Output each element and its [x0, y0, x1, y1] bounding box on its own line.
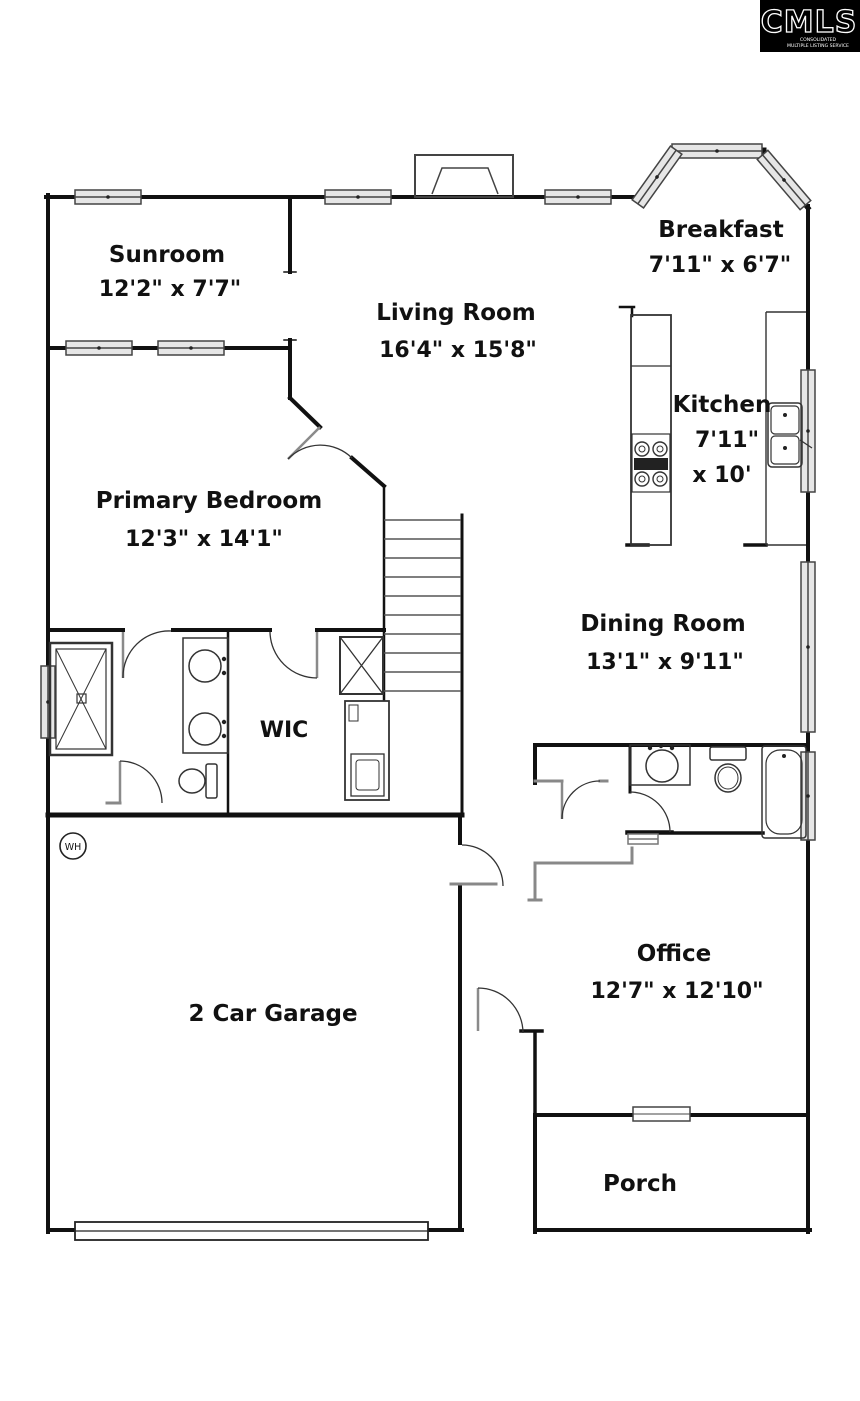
garage-label: 2 Car Garage	[188, 1001, 357, 1027]
utility-cabinet	[345, 701, 389, 800]
primary-bedroom-dims: 12'3" x 14'1"	[125, 527, 283, 552]
garage-door	[75, 1222, 428, 1240]
closet-opening	[628, 834, 658, 844]
thin-partition-walls	[107, 781, 632, 900]
window	[801, 752, 815, 840]
living-room-dims: 16'4" x 15'8"	[379, 338, 537, 363]
bathtub	[762, 746, 806, 838]
dining-room-label: Dining Room	[580, 611, 745, 637]
window	[801, 562, 815, 732]
primary-bedroom-label: Primary Bedroom	[96, 488, 322, 514]
cmls-logo: CMLS CONSOLIDATED MULTIPLE LISTING SERVI…	[760, 0, 860, 52]
window	[75, 190, 141, 204]
cmls-logo-brand: CMLS	[761, 5, 858, 40]
window	[325, 190, 391, 204]
doors	[120, 427, 670, 1033]
office-label: Office	[637, 941, 711, 967]
stove	[632, 434, 670, 492]
window	[801, 370, 815, 492]
kitchen-dims-2: x 10'	[692, 463, 751, 488]
fireplace	[415, 155, 513, 197]
stair-closet-xbox	[340, 637, 383, 694]
sunroom-label: Sunroom	[109, 242, 225, 268]
toilet-hall	[710, 747, 746, 792]
water-heater-label: WH	[65, 842, 82, 853]
sunroom-dims: 12'2" x 7'7"	[99, 277, 241, 302]
porch-label: Porch	[603, 1171, 677, 1197]
porch-step	[633, 1107, 690, 1121]
bay-window-right	[757, 150, 811, 209]
kitchen-dims-1: 7'11"	[695, 428, 759, 453]
kitchen-island	[631, 315, 671, 545]
shower	[50, 643, 112, 755]
floorplan-drawing: WH Sunroom 12'2" x 7'7" Living Room 16'4…	[0, 0, 860, 1401]
kitchen-label: Kitchen	[673, 392, 772, 418]
room-labels: Sunroom 12'2" x 7'7" Living Room 16'4" x…	[96, 217, 791, 1197]
hall-bath-vanity	[630, 744, 690, 785]
office-dims: 12'7" x 12'10"	[590, 979, 763, 1004]
double-vanity	[183, 638, 228, 753]
bay-window-top	[672, 144, 762, 158]
window	[545, 190, 611, 204]
bay-window-left	[632, 146, 682, 208]
breakfast-label: Breakfast	[658, 217, 784, 243]
staircase	[384, 520, 461, 691]
kitchen-counter	[766, 312, 806, 545]
cmls-logo-caption-2: MULTIPLE LISTING SERVICE	[787, 43, 849, 49]
floorplan-page: WH Sunroom 12'2" x 7'7" Living Room 16'4…	[0, 0, 860, 1401]
window	[158, 341, 224, 355]
wic-label: WIC	[260, 718, 309, 743]
door-leafs	[120, 427, 562, 1031]
dining-room-dims: 13'1" x 9'11"	[586, 650, 744, 675]
window	[41, 666, 55, 738]
breakfast-dims: 7'11" x 6'7"	[649, 253, 791, 278]
living-room-label: Living Room	[376, 300, 536, 326]
window	[66, 341, 132, 355]
water-heater: WH	[60, 833, 86, 859]
cmls-logo-caption-1: CONSOLIDATED	[800, 37, 837, 43]
toilet-primary	[179, 764, 217, 798]
